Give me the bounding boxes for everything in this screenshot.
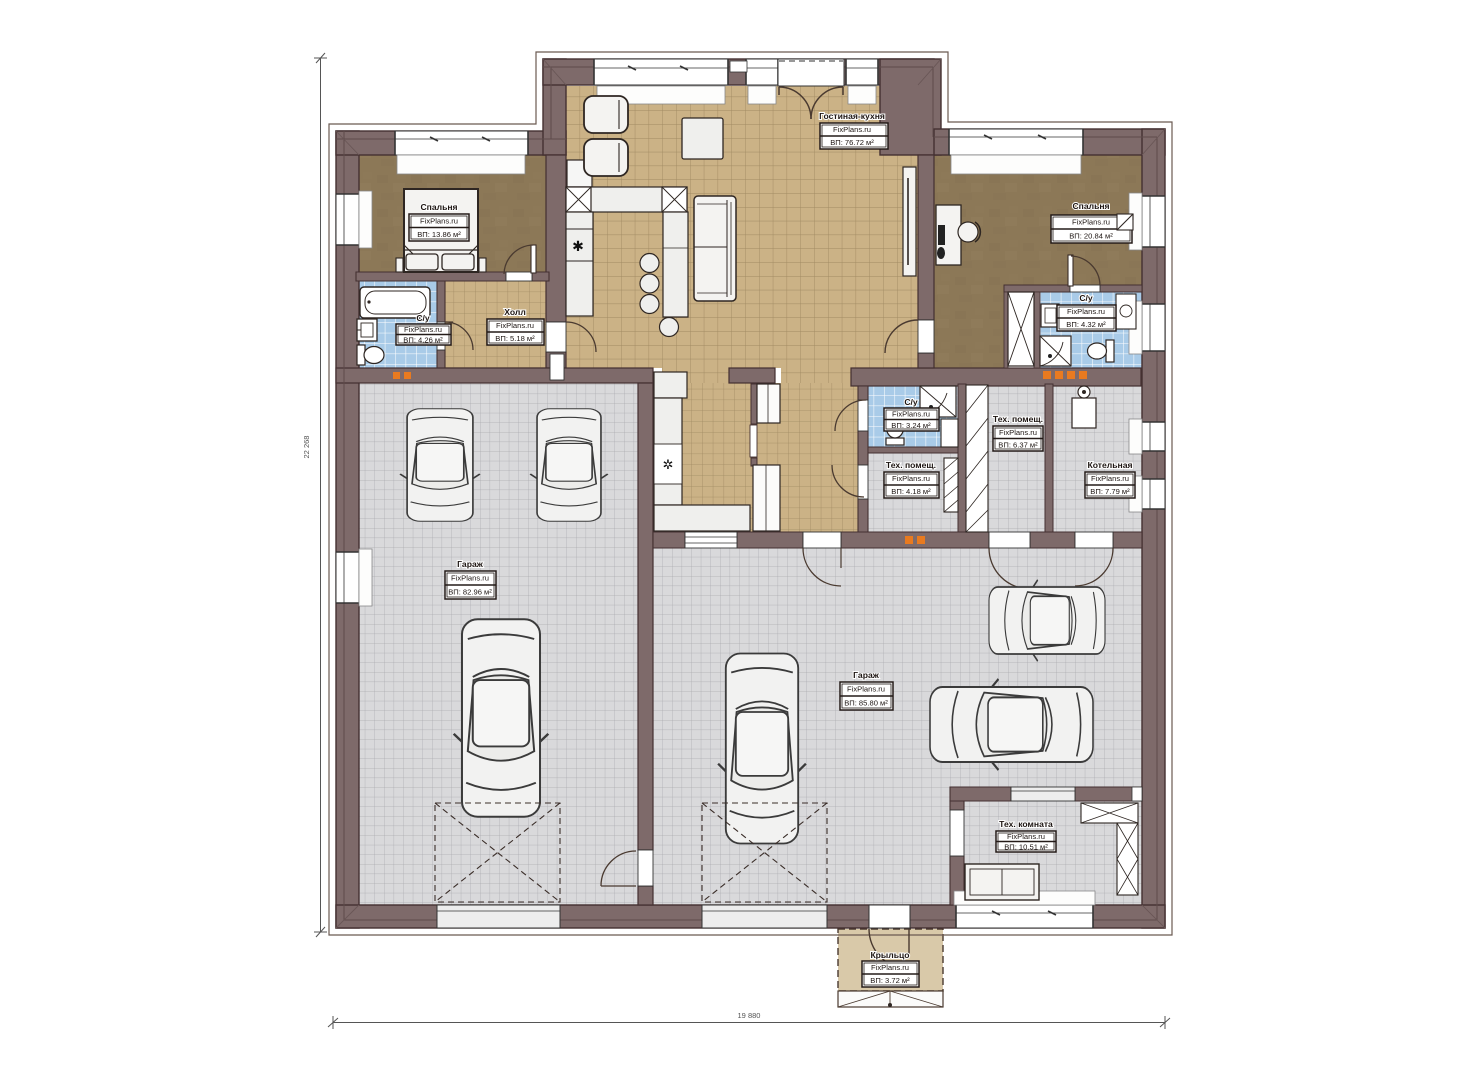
svg-text:FixPlans.ru: FixPlans.ru xyxy=(404,325,442,334)
svg-text:FixPlans.ru: FixPlans.ru xyxy=(999,428,1037,437)
svg-text:FixPlans.ru: FixPlans.ru xyxy=(496,321,534,330)
svg-text:С/у: С/у xyxy=(1079,293,1093,303)
svg-text:ВП: 10.51 м²: ВП: 10.51 м² xyxy=(1004,842,1048,851)
svg-text:Тех. помещ.: Тех. помещ. xyxy=(886,460,936,470)
svg-text:ВП: 5.18 м²: ВП: 5.18 м² xyxy=(495,334,535,343)
svg-text:ВП: 4.18 м²: ВП: 4.18 м² xyxy=(891,487,931,496)
svg-text:ВП: 3.24 м²: ВП: 3.24 м² xyxy=(891,421,931,430)
svg-text:✱: ✱ xyxy=(572,238,584,254)
svg-text:ВП: 3.72 м²: ВП: 3.72 м² xyxy=(870,976,910,985)
svg-text:Спальня: Спальня xyxy=(420,202,457,212)
svg-text:FixPlans.ru: FixPlans.ru xyxy=(1072,218,1110,227)
svg-text:ВП: 76.72 м²: ВП: 76.72 м² xyxy=(830,138,874,147)
svg-text:ВП: 85.80 м²: ВП: 85.80 м² xyxy=(844,699,888,708)
svg-text:22 268: 22 268 xyxy=(302,436,311,459)
svg-text:FixPlans.ru: FixPlans.ru xyxy=(871,963,909,972)
svg-text:ВП: 7.79 м²: ВП: 7.79 м² xyxy=(1090,487,1130,496)
svg-text:✲: ✲ xyxy=(663,457,674,472)
svg-text:FixPlans.ru: FixPlans.ru xyxy=(1067,307,1105,316)
svg-text:FixPlans.ru: FixPlans.ru xyxy=(847,685,885,694)
svg-text:FixPlans.ru: FixPlans.ru xyxy=(833,125,871,134)
svg-text:Крыльцо: Крыльцо xyxy=(870,950,909,960)
svg-text:FixPlans.ru: FixPlans.ru xyxy=(451,574,489,583)
svg-text:Холл: Холл xyxy=(504,307,526,317)
svg-text:С/у: С/у xyxy=(904,397,918,407)
svg-text:Котельная: Котельная xyxy=(1088,460,1133,470)
svg-text:FixPlans.ru: FixPlans.ru xyxy=(420,216,458,225)
svg-text:ВП: 20.84 м²: ВП: 20.84 м² xyxy=(1069,232,1113,241)
svg-text:FixPlans.ru: FixPlans.ru xyxy=(1007,832,1045,841)
svg-text:FixPlans.ru: FixPlans.ru xyxy=(892,474,930,483)
svg-text:ВП: 4.26 м²: ВП: 4.26 м² xyxy=(403,335,443,344)
svg-text:С/у: С/у xyxy=(416,313,430,323)
svg-text:ВП: 6.37 м²: ВП: 6.37 м² xyxy=(998,440,1038,449)
svg-text:Гараж: Гараж xyxy=(853,670,880,680)
svg-text:Тех. помещ.: Тех. помещ. xyxy=(993,414,1043,424)
svg-text:Спальня: Спальня xyxy=(1072,201,1109,211)
svg-text:Гараж: Гараж xyxy=(457,559,484,569)
svg-text:FixPlans.ru: FixPlans.ru xyxy=(1091,474,1129,483)
svg-text:ВП: 82.96 м²: ВП: 82.96 м² xyxy=(448,588,492,597)
svg-text:ВП: 4.32 м²: ВП: 4.32 м² xyxy=(1066,320,1106,329)
svg-text:19 880: 19 880 xyxy=(738,1011,761,1020)
svg-text:FixPlans.ru: FixPlans.ru xyxy=(892,409,930,418)
svg-text:ВП: 13.86 м²: ВП: 13.86 м² xyxy=(417,230,461,239)
svg-text:Гостиная-кухня: Гостиная-кухня xyxy=(819,111,885,121)
svg-text:Тех. комната: Тех. комната xyxy=(999,819,1053,829)
